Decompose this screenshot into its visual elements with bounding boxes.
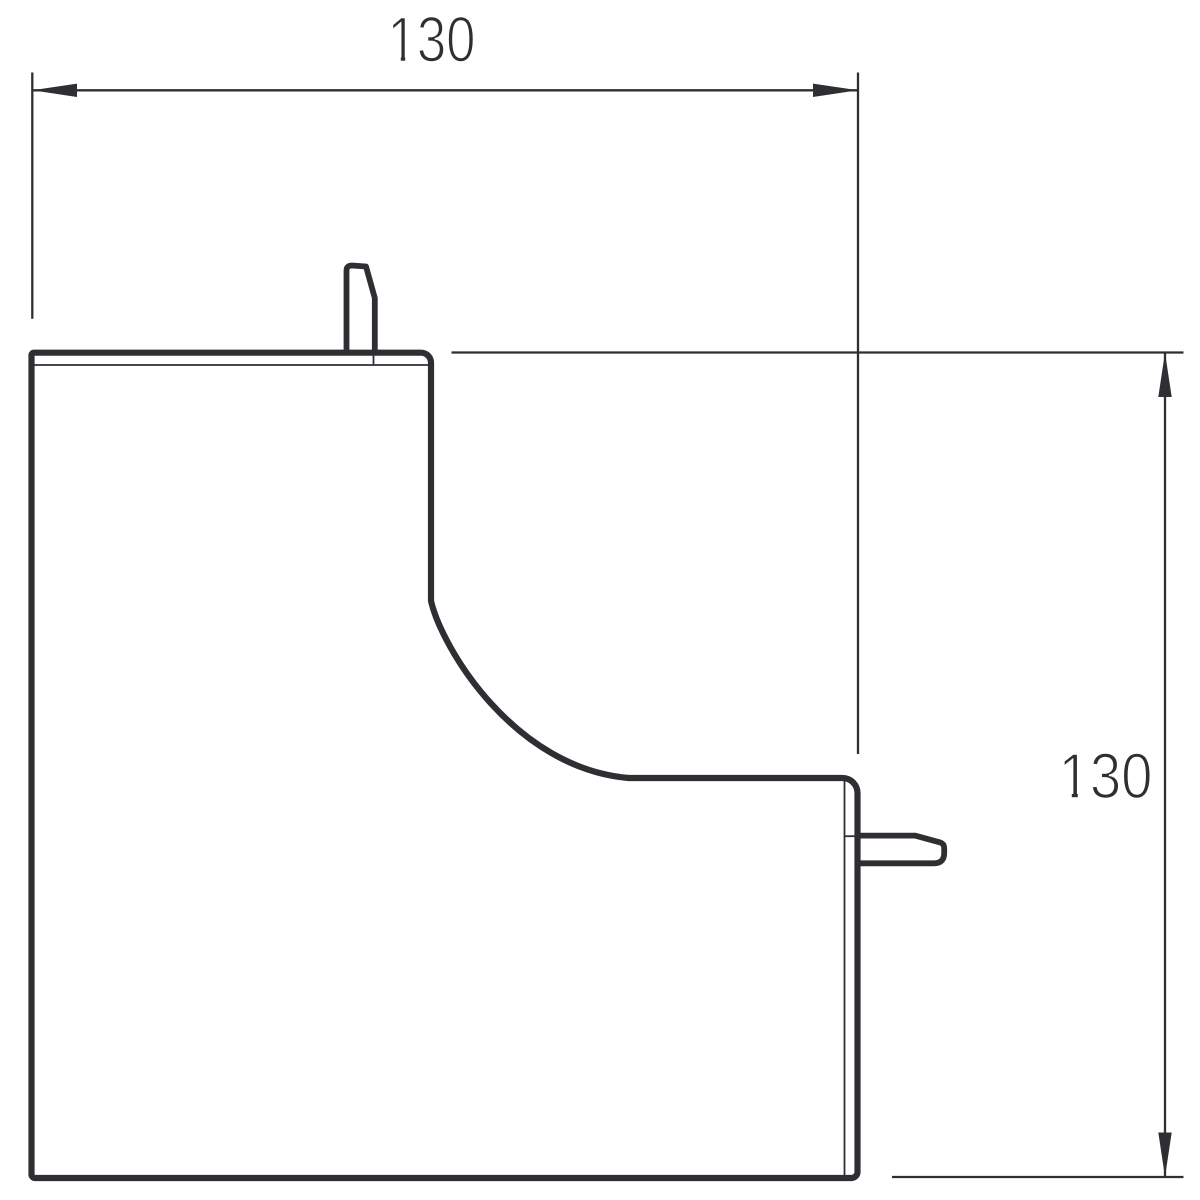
svg-text:130: 130 — [1059, 740, 1153, 812]
svg-text:130: 130 — [388, 4, 476, 76]
